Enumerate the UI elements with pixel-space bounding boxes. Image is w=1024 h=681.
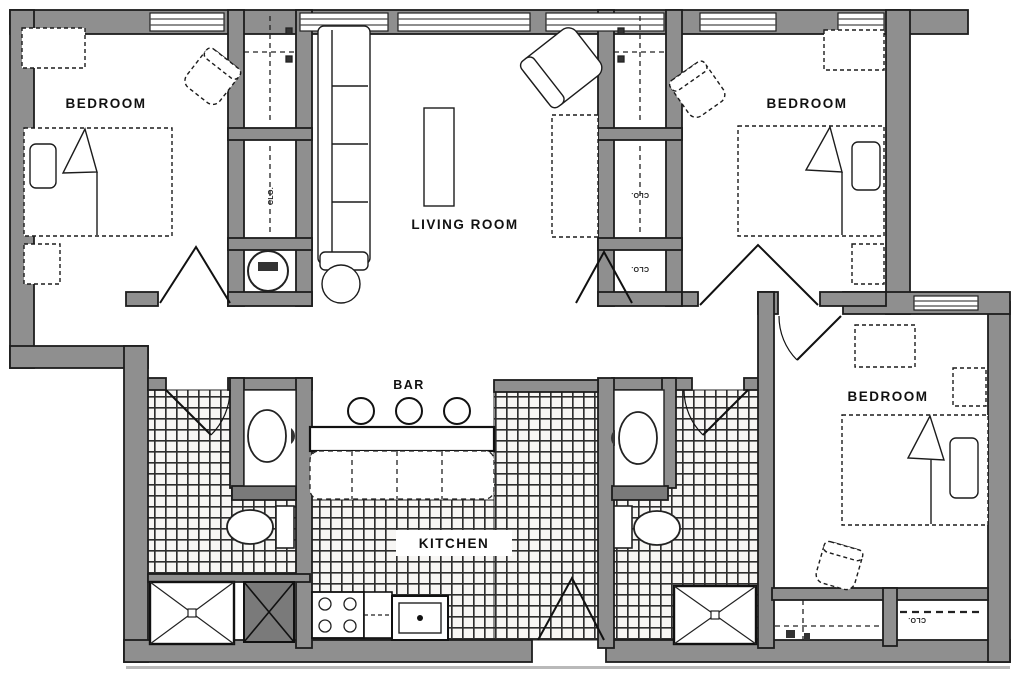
- wall-strip2-left: [598, 10, 614, 306]
- strip1-hook-2: [286, 56, 292, 62]
- kitchen-label: KITCHEN: [419, 536, 490, 551]
- bath2-shower-icon: [674, 586, 756, 644]
- wall-strip2-div1: [598, 128, 682, 140]
- window-bed2-right: [838, 13, 884, 31]
- bedroom-top-left-label: BEDROOM: [66, 96, 147, 111]
- wall-bath1-top-stub: [148, 378, 166, 390]
- kitchen-sink-icon: [392, 596, 448, 640]
- bed2-bed-icon: [738, 126, 884, 236]
- bed3-bed-icon: [842, 415, 988, 525]
- wall-bottom-right: [606, 640, 1010, 662]
- wall-left-lower: [124, 346, 148, 662]
- round-table-icon: [322, 265, 360, 303]
- wall-strip1-div1: [228, 128, 312, 140]
- bed3-door-swing: [779, 316, 841, 360]
- range-icon: [312, 592, 364, 638]
- bar-stool-icon-1: [348, 398, 374, 424]
- bar-label: BAR: [393, 378, 425, 392]
- wall-strip1-bottom: [228, 292, 312, 306]
- bottom-trim-line: [126, 666, 1010, 669]
- bath1-shower-icon: [150, 582, 234, 644]
- left-hall-closet-label: CLO.: [268, 187, 275, 205]
- bedroom-right-label: BEDROOM: [848, 389, 929, 404]
- bath1-toilet-icon: [227, 510, 273, 544]
- bed1-bed-icon: [24, 128, 172, 236]
- bar-counter: [310, 427, 494, 451]
- bed3-closet-mark-2: [804, 633, 810, 639]
- wall-strip1-left: [228, 10, 244, 306]
- bed2-nightstand: [852, 244, 884, 284]
- bed3-side-table: [953, 368, 986, 406]
- window-bed3: [914, 296, 978, 310]
- strip2-hook-1: [618, 28, 624, 34]
- mechanical-chase-icon: [244, 582, 294, 642]
- bed1-door-swing: [160, 247, 230, 303]
- living-room-label: LIVING ROOM: [411, 217, 518, 232]
- wall-bed3-closet-div: [883, 588, 897, 646]
- window-living-2: [398, 13, 530, 31]
- wall-strip2-right: [666, 10, 682, 306]
- bed2-desk: [824, 30, 884, 70]
- bedroom-top-right-label: BEDROOM: [767, 96, 848, 111]
- wall-strip2-bottom: [598, 292, 682, 306]
- bath1-sink-icon: [248, 410, 286, 462]
- right-hall-closet-lower-label: CLO.: [631, 265, 649, 272]
- kitchen-tile-floor-right: [494, 390, 598, 640]
- wall-bed3-closet-top: [772, 588, 988, 600]
- bed1-nightstand: [24, 244, 60, 284]
- bath2-toilet-tank: [614, 506, 632, 548]
- wall-bath1-shower: [148, 574, 310, 582]
- bed3-chair-icon: [814, 540, 864, 591]
- wall-bath1-niche-left: [230, 378, 244, 488]
- wall-right-upper: [886, 10, 910, 314]
- armchair-icon: [518, 24, 606, 110]
- wall-stub-bed2-door-left: [682, 292, 698, 306]
- wall-bath2-left: [598, 378, 614, 648]
- bed3-desk: [855, 325, 915, 367]
- sofa-icon: [318, 26, 370, 270]
- bath2-sink-icon: [619, 412, 657, 464]
- bar-base-cabinets: [310, 451, 494, 499]
- window-bed1: [150, 13, 224, 31]
- bar-stool-icon-2: [396, 398, 422, 424]
- bath1-toilet-tank: [276, 506, 294, 548]
- floor-plan-page: BEDROOM BEDROOM BEDROOM LIVING ROOM BAR …: [0, 0, 1024, 681]
- bar-stool-icon-3: [444, 398, 470, 424]
- window-bed2: [700, 13, 776, 31]
- wall-right-lower: [988, 302, 1010, 662]
- wall-strip1-div2: [228, 238, 312, 250]
- wall-bath1-right: [296, 378, 312, 648]
- bedroom-right-closet-label: CLO.: [908, 616, 926, 623]
- bed3-closet-mark-1: [786, 630, 795, 638]
- wall-strip1-right: [296, 10, 312, 306]
- right-hall-closet-label: CLO.: [631, 191, 649, 198]
- wall-stub-bed1-door: [126, 292, 158, 306]
- strip2-hook-2: [618, 56, 624, 62]
- wall-bed2-bottom: [820, 292, 886, 306]
- living-side-table: [552, 115, 598, 237]
- bath2-toilet-icon: [634, 511, 680, 545]
- bath2-vanity-counter: [612, 486, 668, 500]
- wall-strip2-div2: [598, 238, 682, 250]
- dishwasher-icon: [364, 592, 392, 638]
- bath1-vanity-counter: [232, 486, 296, 500]
- washer-glyph: [258, 262, 278, 271]
- bed1-desk: [22, 28, 85, 68]
- wall-bath2-top: [612, 378, 692, 390]
- floor-plan-drawing: BEDROOM BEDROOM BEDROOM LIVING ROOM BAR …: [0, 0, 1024, 681]
- coffee-table: [424, 108, 454, 206]
- strip1-hook-1: [286, 28, 292, 34]
- wall-kitchen-top: [494, 380, 598, 392]
